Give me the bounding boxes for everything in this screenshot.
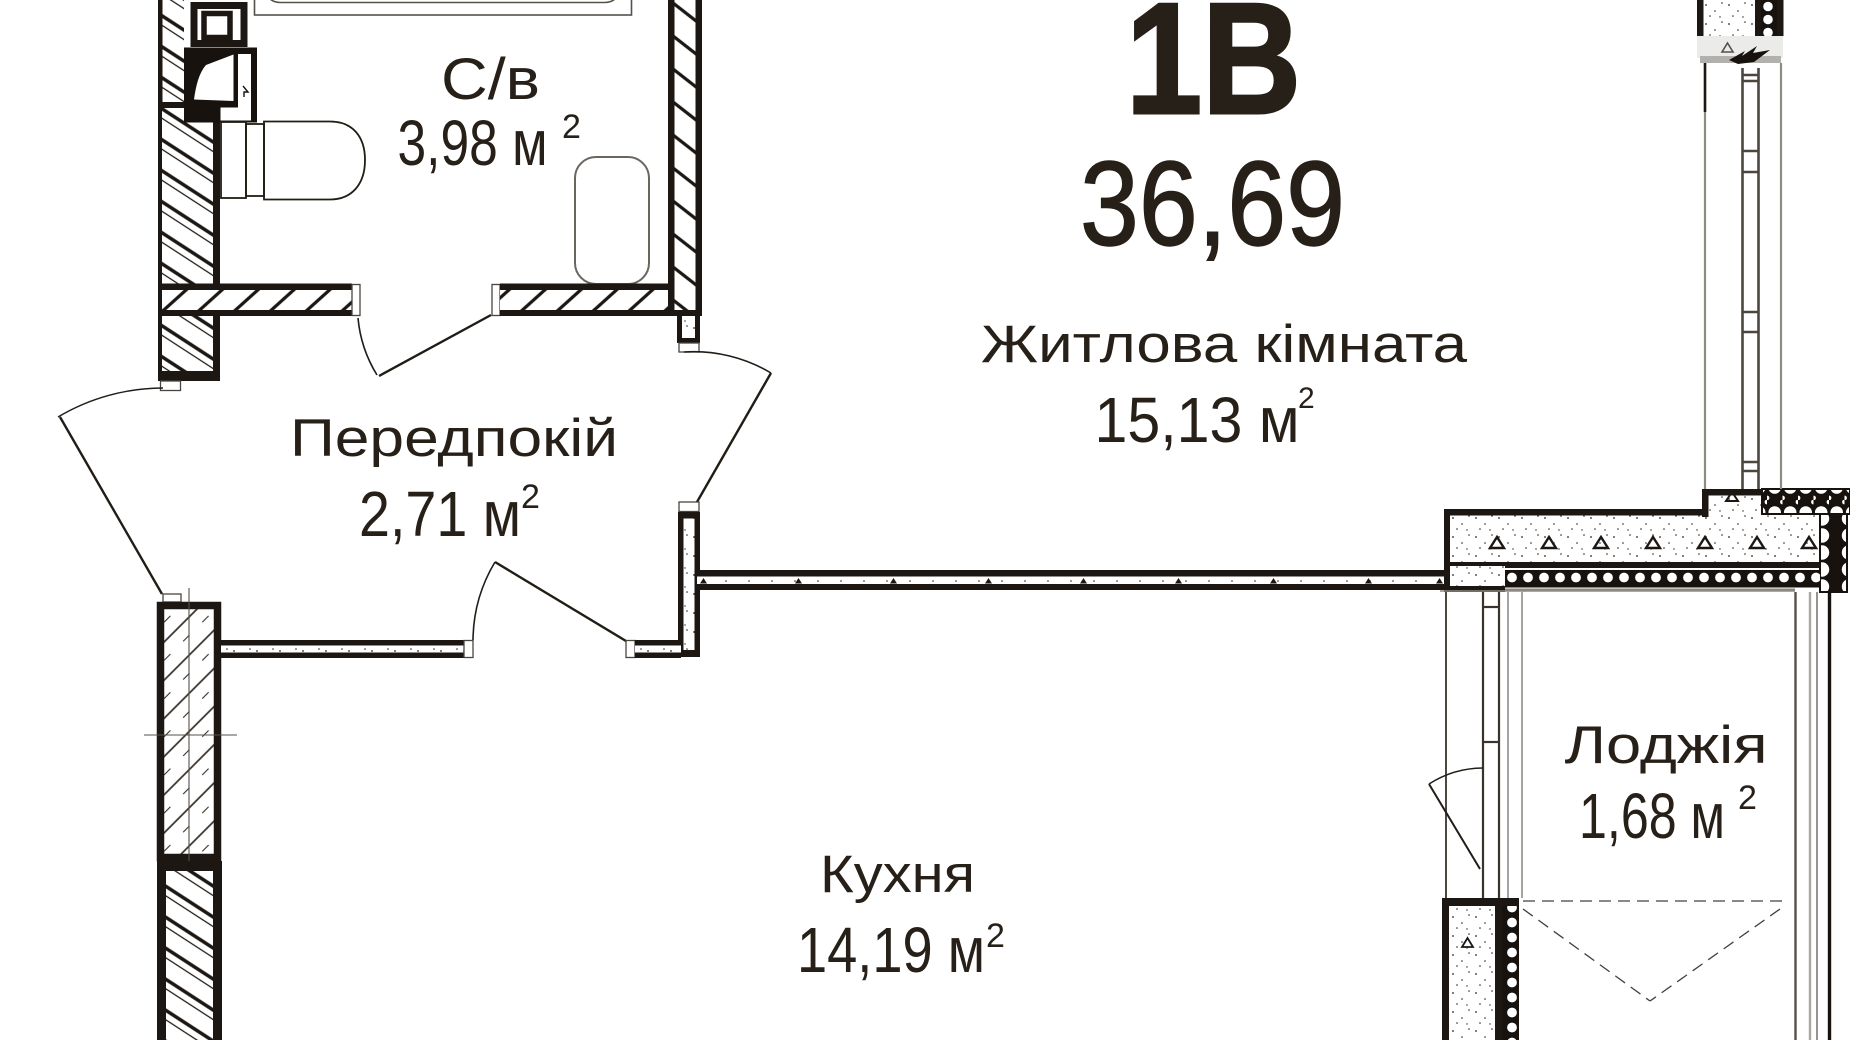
svg-text:Лоджія: Лоджія xyxy=(1565,716,1768,775)
svg-text:2: 2 xyxy=(521,478,540,516)
svg-text:Житлова кімната: Житлова кімната xyxy=(981,315,1468,374)
svg-text:Передпокій: Передпокій xyxy=(290,409,618,468)
svg-text:2: 2 xyxy=(562,108,581,146)
svg-text:2: 2 xyxy=(1738,779,1757,817)
svg-text:2,71 м: 2,71 м xyxy=(359,478,521,550)
svg-text:1,68 м: 1,68 м xyxy=(1579,780,1725,852)
svg-text:1В: 1В xyxy=(1126,0,1301,147)
svg-text:2: 2 xyxy=(986,917,1005,955)
svg-text:Кухня: Кухня xyxy=(820,845,975,904)
svg-text:15,13 м: 15,13 м xyxy=(1095,384,1300,456)
svg-text:36,69: 36,69 xyxy=(1080,137,1345,271)
svg-text:С/в: С/в xyxy=(441,47,540,112)
svg-text:3,98 м: 3,98 м xyxy=(398,107,548,179)
svg-text:2: 2 xyxy=(1298,382,1315,415)
svg-text:14,19 м: 14,19 м xyxy=(797,914,985,986)
